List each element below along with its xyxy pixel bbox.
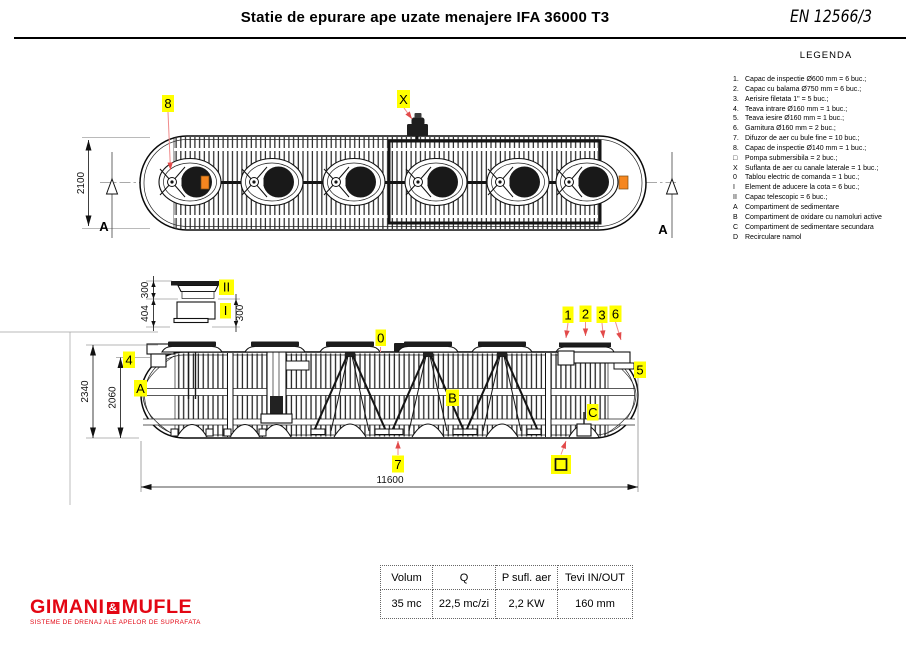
svg-text:A: A xyxy=(658,222,668,237)
callout-3: 3 xyxy=(597,307,608,339)
hatch-3 xyxy=(323,159,385,206)
svg-text:2340: 2340 xyxy=(80,380,91,403)
inlet-fitting xyxy=(201,176,209,189)
header-divider xyxy=(14,37,906,39)
company-logo: GIMANI&MUFLE SISTEME DE DRENAJ ALE APELO… xyxy=(30,598,201,626)
telescopic-cap-detail: 300 404 300 II I xyxy=(140,276,246,332)
svg-text:5: 5 xyxy=(636,363,643,378)
svg-text:2100: 2100 xyxy=(76,171,87,194)
logo-tagline: SISTEME DE DRENAJ ALE APELOR DE SUPRAFAT… xyxy=(30,619,201,626)
svg-text:7: 7 xyxy=(394,457,401,472)
svg-text:3: 3 xyxy=(598,308,605,323)
outlet-fitting xyxy=(619,176,628,189)
svg-text:6: 6 xyxy=(612,307,619,322)
logo-ampersand: & xyxy=(107,602,120,614)
spec-value-row: 35 mc 22,5 mc/zi 2,2 KW 160 mm xyxy=(381,590,633,619)
spec-value-tevi: 160 mm xyxy=(558,590,633,619)
section-marker-right: A xyxy=(658,152,677,238)
spec-header-q: Q xyxy=(433,566,496,590)
svg-text:2: 2 xyxy=(582,307,589,322)
legend-item: 4.Teava intrare Ø160 mm = 1 buc.; xyxy=(733,105,919,115)
legend-item: IICapac telescopic = 6 buc.; xyxy=(733,193,919,203)
svg-text:I: I xyxy=(224,303,228,318)
cap-2 xyxy=(245,342,305,353)
legend-item: 3.Aerisire filetata 1" = 5 buc.; xyxy=(733,95,919,105)
svg-text:300: 300 xyxy=(235,304,246,321)
section-arrow-icon xyxy=(107,179,118,194)
svg-text:II: II xyxy=(223,280,230,295)
legend-item: DRecirculare namol xyxy=(733,233,919,243)
divider-wall xyxy=(228,353,234,437)
legend: LEGENDA 1.Capac de inspectie Ø600 mm = 6… xyxy=(733,50,919,242)
spec-header-tevi: Tevi IN/OUT xyxy=(558,566,633,590)
callout-5: 5 xyxy=(634,362,646,379)
callout-compartment-c: C xyxy=(587,404,599,421)
svg-text:A: A xyxy=(99,219,109,234)
callout-6: 6 xyxy=(610,306,622,341)
callout-element-I: I xyxy=(220,303,231,319)
spec-value-volum: 35 mc xyxy=(381,590,433,619)
svg-text:B: B xyxy=(448,391,457,406)
legend-item: □Pompa submersibila = 2 buc.; xyxy=(733,154,919,164)
cap-3 xyxy=(320,342,380,353)
dim-2100: 2100 xyxy=(76,140,89,226)
hatch-5 xyxy=(487,159,549,206)
svg-text:404: 404 xyxy=(140,305,151,322)
divider-wall xyxy=(546,353,552,437)
section-marker-left: A xyxy=(99,152,117,238)
svg-text:11600: 11600 xyxy=(376,475,404,486)
svg-text:300: 300 xyxy=(140,281,151,298)
drawing-sheet: Statie de epurare ape uzate menajere IFA… xyxy=(0,0,920,650)
svg-text:1: 1 xyxy=(564,308,571,323)
spec-header-volum: Volum xyxy=(381,566,433,590)
legend-item: 5.Teava iesire Ø160 mm = 1 buc.; xyxy=(733,114,919,124)
legend-item: 7.Difuzor de aer cu bule fine = 10 buc.; xyxy=(733,134,919,144)
legend-title: LEGENDA xyxy=(733,50,919,61)
hatch-6 xyxy=(556,159,618,206)
callout-pump-symbol xyxy=(551,441,571,474)
svg-text:X: X xyxy=(399,92,408,107)
hatch-4 xyxy=(405,159,467,206)
callout-7: 7 xyxy=(392,441,404,473)
legend-item: XSuflanta de aer cu canale laterale = 1 … xyxy=(733,164,919,174)
svg-text:8: 8 xyxy=(164,96,171,111)
spec-header-p: P sufl. aer xyxy=(496,566,558,590)
spec-value-q: 22,5 mc/zi xyxy=(433,590,496,619)
cap-4 xyxy=(398,342,458,353)
standard-ref: EN 12566/3 xyxy=(790,7,872,26)
svg-text:0: 0 xyxy=(377,331,384,346)
callout-telescopic-II: II xyxy=(219,280,234,296)
logo-name: GIMANI&MUFLE xyxy=(30,598,208,618)
legend-item: IElement de aducere la cota = 6 buc.; xyxy=(733,183,919,193)
hatch-2 xyxy=(241,159,303,206)
legend-item: 6.Garnitura Ø160 mm = 2 buc.; xyxy=(733,124,919,134)
legend-item: 1.Capac de inspectie Ø600 mm = 6 buc.; xyxy=(733,75,919,85)
legend-item: BCompartiment de oxidare cu namoluri act… xyxy=(733,213,919,223)
cap-5 xyxy=(472,342,532,353)
svg-text:C: C xyxy=(588,405,597,420)
cap-1 xyxy=(162,342,222,353)
callout-compartment-a: A xyxy=(134,380,147,397)
callout-2: 2 xyxy=(580,306,592,337)
spec-value-p: 2,2 KW xyxy=(496,590,558,619)
callout-4: 4 xyxy=(123,352,135,369)
legend-item: ACompartiment de sedimentare xyxy=(733,203,919,213)
legend-item: CCompartiment de sedimentare secundara xyxy=(733,223,919,233)
section-arrow-icon xyxy=(667,179,678,194)
svg-text:A: A xyxy=(136,381,145,396)
spec-header-row: Volum Q P sufl. aer Tevi IN/OUT xyxy=(381,566,633,590)
page-title: Statie de epurare ape uzate menajere IFA… xyxy=(241,9,610,26)
legend-item: 2.Capac cu balama Ø750 mm = 6 buc.; xyxy=(733,85,919,95)
callout-blower-x: X xyxy=(397,90,412,119)
legend-item: 8.Capac de inspectie Ø140 mm = 1 buc.; xyxy=(733,144,919,154)
callout-compartment-b: B xyxy=(446,390,459,407)
callout-1: 1 xyxy=(563,307,574,339)
top-view-drawing: 2100 xyxy=(0,84,700,254)
side-view-drawing: 300 404 300 II I xyxy=(0,258,700,508)
hatch-1 xyxy=(159,159,221,206)
legend-item: 0Tablou electric de comanda = 1 buc.; xyxy=(733,173,919,183)
svg-text:4: 4 xyxy=(125,353,132,368)
svg-text:2060: 2060 xyxy=(108,386,119,409)
spec-table: Volum Q P sufl. aer Tevi IN/OUT 35 mc 22… xyxy=(380,565,633,619)
